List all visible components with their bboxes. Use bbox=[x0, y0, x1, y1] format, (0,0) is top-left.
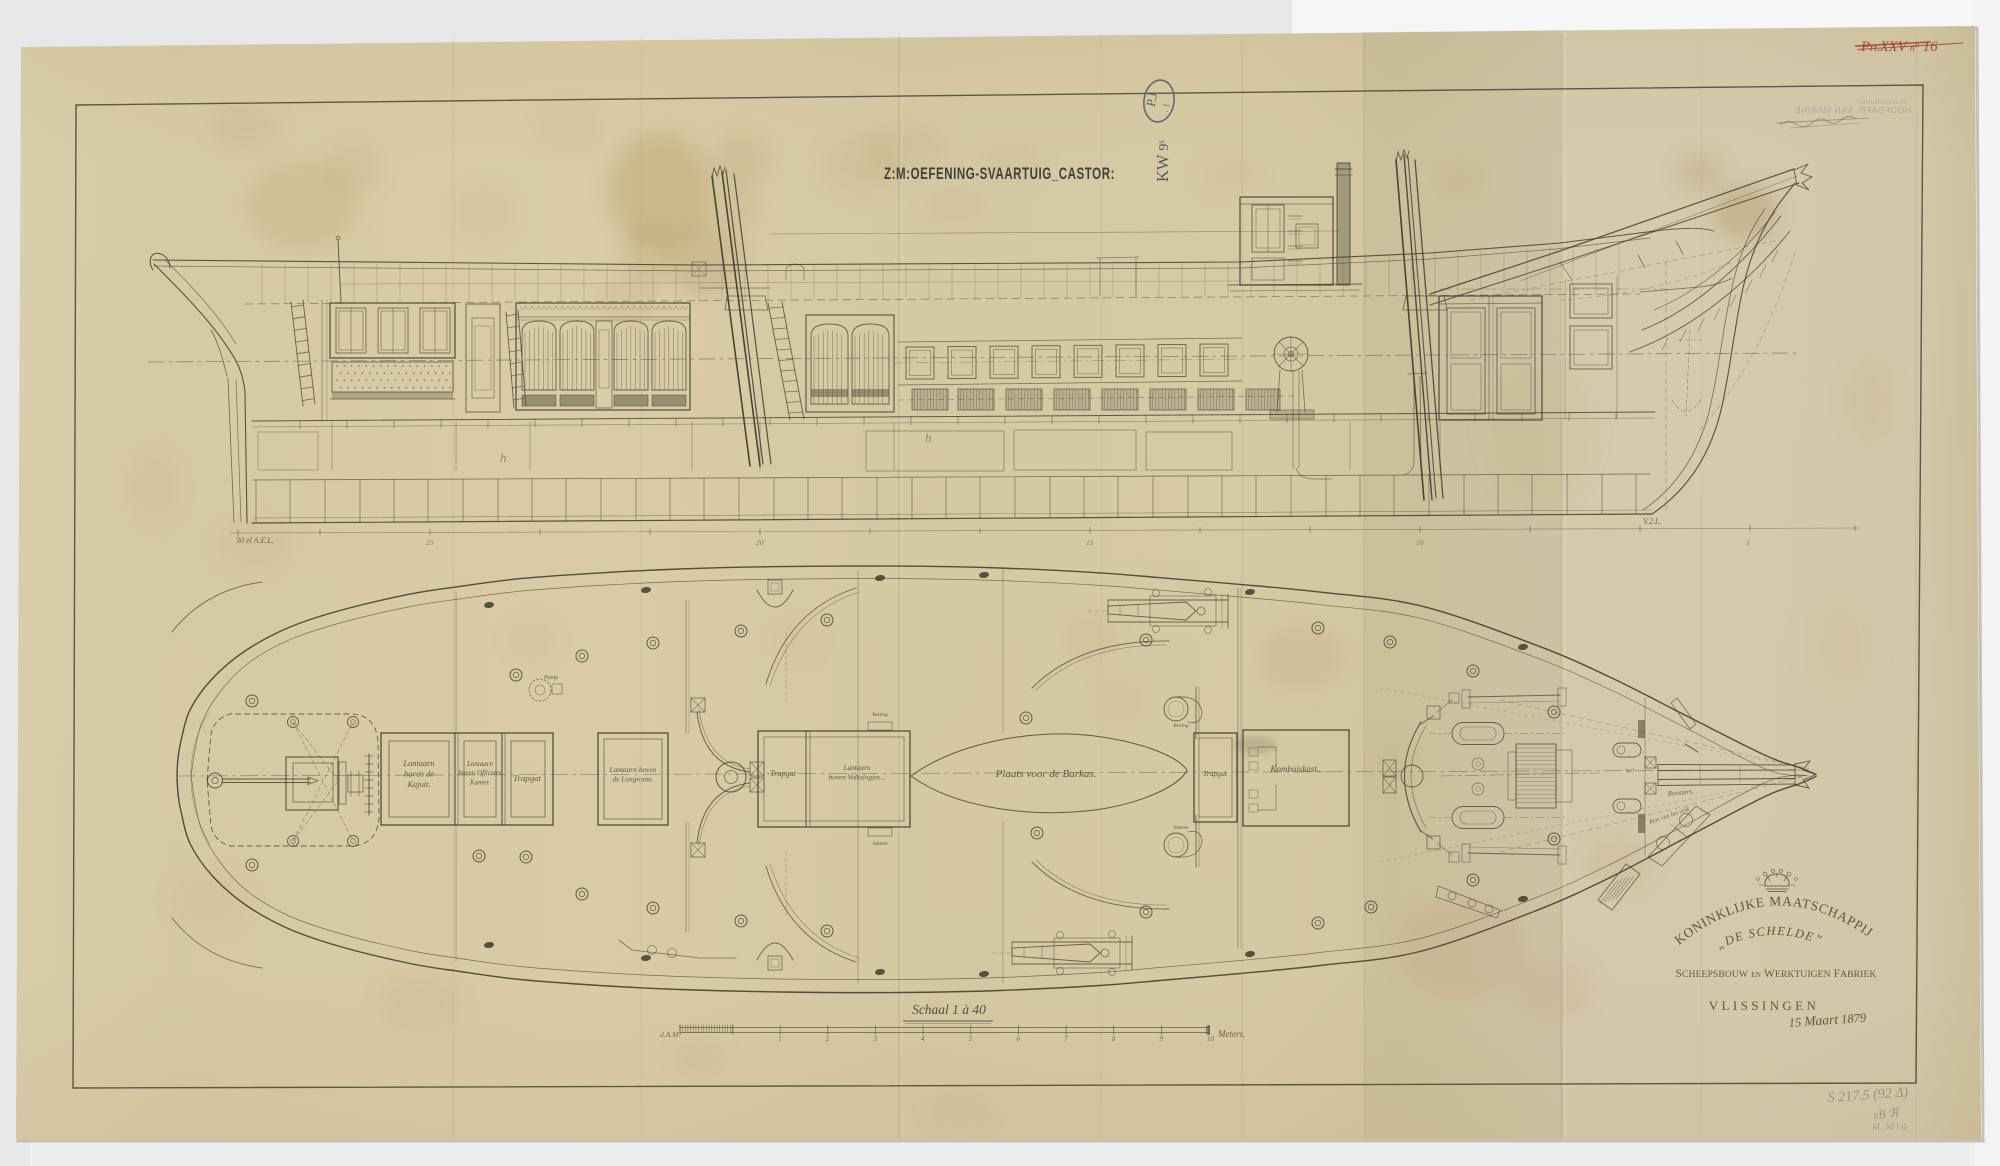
svg-text:boven Volkslogies...: boven Volkslogies... bbox=[829, 773, 886, 781]
svg-text:5: 5 bbox=[1746, 538, 1750, 547]
svg-text:Bening: Bening bbox=[872, 712, 888, 718]
svg-text:30 el A.E.L.: 30 el A.E.L. bbox=[235, 536, 274, 545]
svg-text:8: 8 bbox=[1112, 1035, 1116, 1043]
svg-text:Z:M:OEFENING-SVAARTUIG_CASTOR:: Z:M:OEFENING-SVAARTUIG_CASTOR: bbox=[884, 165, 1115, 183]
svg-text:SCHEEPSBOUW EN WERKTUIGEN FABR: SCHEEPSBOUW EN WERKTUIGEN FABRIEK bbox=[1676, 968, 1877, 980]
svg-text:Trapgat: Trapgat bbox=[1203, 769, 1228, 778]
svg-text:6: 6 bbox=[1016, 1035, 1020, 1043]
svg-text:Trapgat: Trapgat bbox=[513, 773, 541, 783]
svg-text:boven de: boven de bbox=[404, 770, 434, 779]
svg-text:9: 9 bbox=[1159, 1035, 1163, 1043]
svg-text:Kamer.: Kamer. bbox=[469, 778, 490, 786]
svg-text:h: h bbox=[500, 450, 507, 465]
svg-text:Plaats voor de Barkas.: Plaats voor de Barkas. bbox=[995, 768, 1097, 780]
svg-text:V.2.L.: V.2.L. bbox=[1643, 517, 1661, 526]
svg-text:boven Officiers: boven Officiers bbox=[459, 769, 502, 777]
svg-text:Lantaarn: Lantaarn bbox=[466, 760, 494, 768]
svg-text:d.A.M.: d.A.M. bbox=[660, 1030, 680, 1039]
svg-text:Kajuit.: Kajuit. bbox=[406, 780, 430, 789]
svg-text:Spil: Spil bbox=[1625, 768, 1634, 774]
svg-text:15: 15 bbox=[1086, 538, 1094, 547]
svg-text:Lantaarn: Lantaarn bbox=[402, 759, 434, 768]
svg-text:εΒ ℜ: εΒ ℜ bbox=[1873, 1105, 1900, 1122]
svg-text:2: 2 bbox=[826, 1035, 830, 1043]
svg-text:VLISSINGEN: VLISSINGEN bbox=[1709, 998, 1820, 1013]
svg-text:10: 10 bbox=[1416, 538, 1424, 547]
svg-text:de Longroom.: de Longroom. bbox=[612, 775, 653, 784]
svg-text:Lantaarn: Lantaarn bbox=[843, 764, 871, 772]
svg-text:Slutten: Slutten bbox=[1173, 825, 1189, 831]
svg-text:20: 20 bbox=[756, 538, 764, 547]
svg-text:kl. 3d i.g.: kl. 3d i.g. bbox=[1873, 1121, 1909, 1133]
svg-text:7: 7 bbox=[1064, 1035, 1068, 1043]
svg-text:HOOFDAFD. VAN MARINE: HOOFDAFD. VAN MARINE bbox=[1794, 105, 1911, 115]
svg-text:3: 3 bbox=[872, 1035, 877, 1043]
svg-text:25: 25 bbox=[426, 538, 434, 547]
svg-text:Slutten: Slutten bbox=[872, 841, 888, 847]
svg-text:Bening: Bening bbox=[1173, 723, 1189, 729]
svg-text:4: 4 bbox=[921, 1035, 925, 1043]
svg-text:Pomp: Pomp bbox=[543, 675, 558, 681]
svg-text:Lantaarn boven: Lantaarn boven bbox=[608, 765, 656, 774]
svg-text:5: 5 bbox=[969, 1035, 973, 1043]
svg-text:h: h bbox=[925, 430, 932, 445]
svg-text:1: 1 bbox=[778, 1035, 782, 1043]
svg-text:Trapgat: Trapgat bbox=[770, 769, 797, 778]
svg-text:Schaal 1 à 40: Schaal 1 à 40 bbox=[912, 1002, 986, 1017]
svg-text:10: 10 bbox=[1207, 1035, 1215, 1043]
svg-text:Kombuiskast...: Kombuiskast... bbox=[1269, 764, 1323, 774]
svg-text:Meters.: Meters. bbox=[1217, 1029, 1245, 1039]
